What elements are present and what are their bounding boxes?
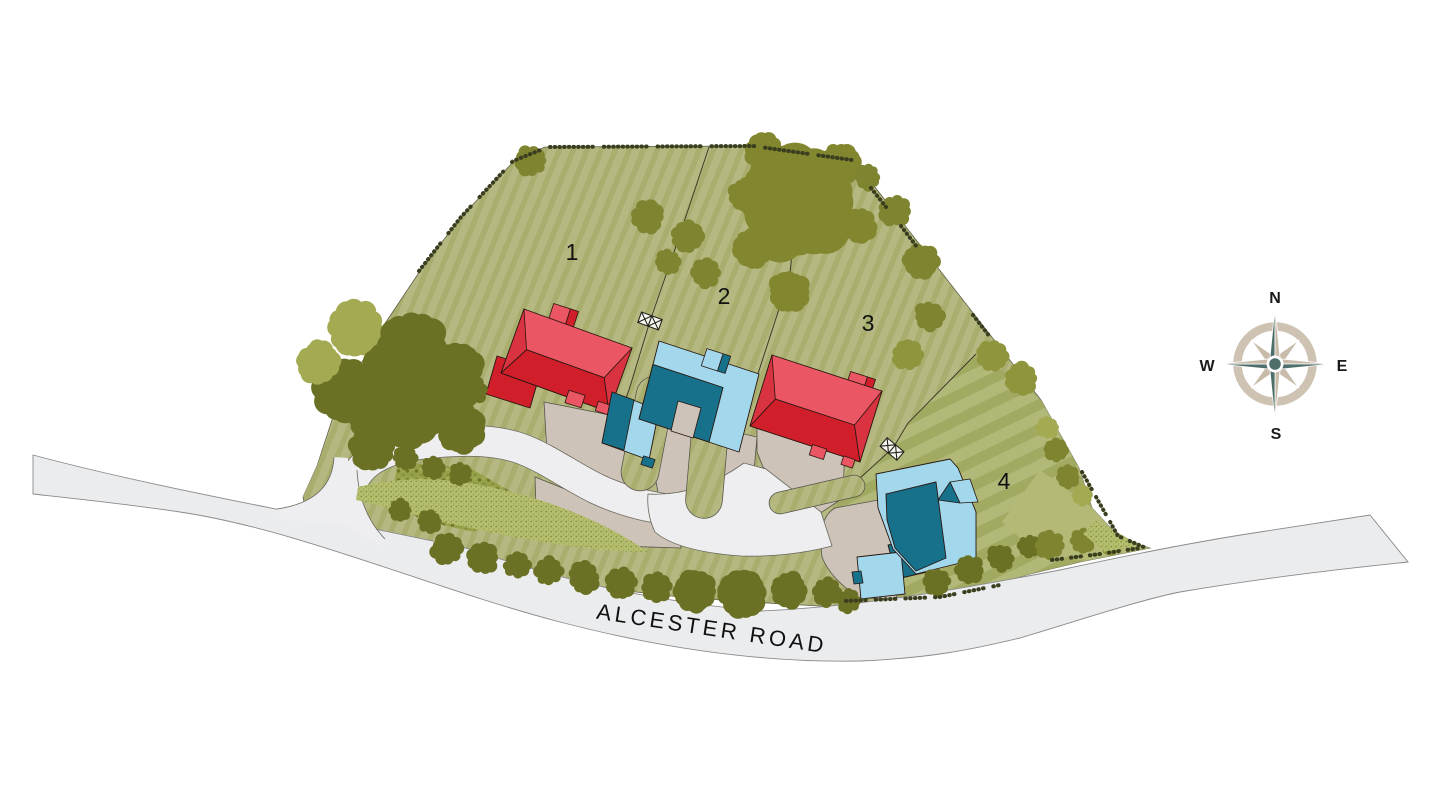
svg-text:4: 4 xyxy=(998,468,1011,494)
svg-text:1: 1 xyxy=(566,239,579,265)
svg-text:S: S xyxy=(1271,426,1282,443)
svg-text:2: 2 xyxy=(718,283,731,309)
svg-text:3: 3 xyxy=(862,310,875,336)
svg-text:W: W xyxy=(1199,358,1215,375)
svg-text:E: E xyxy=(1337,358,1348,375)
svg-text:N: N xyxy=(1269,290,1281,307)
